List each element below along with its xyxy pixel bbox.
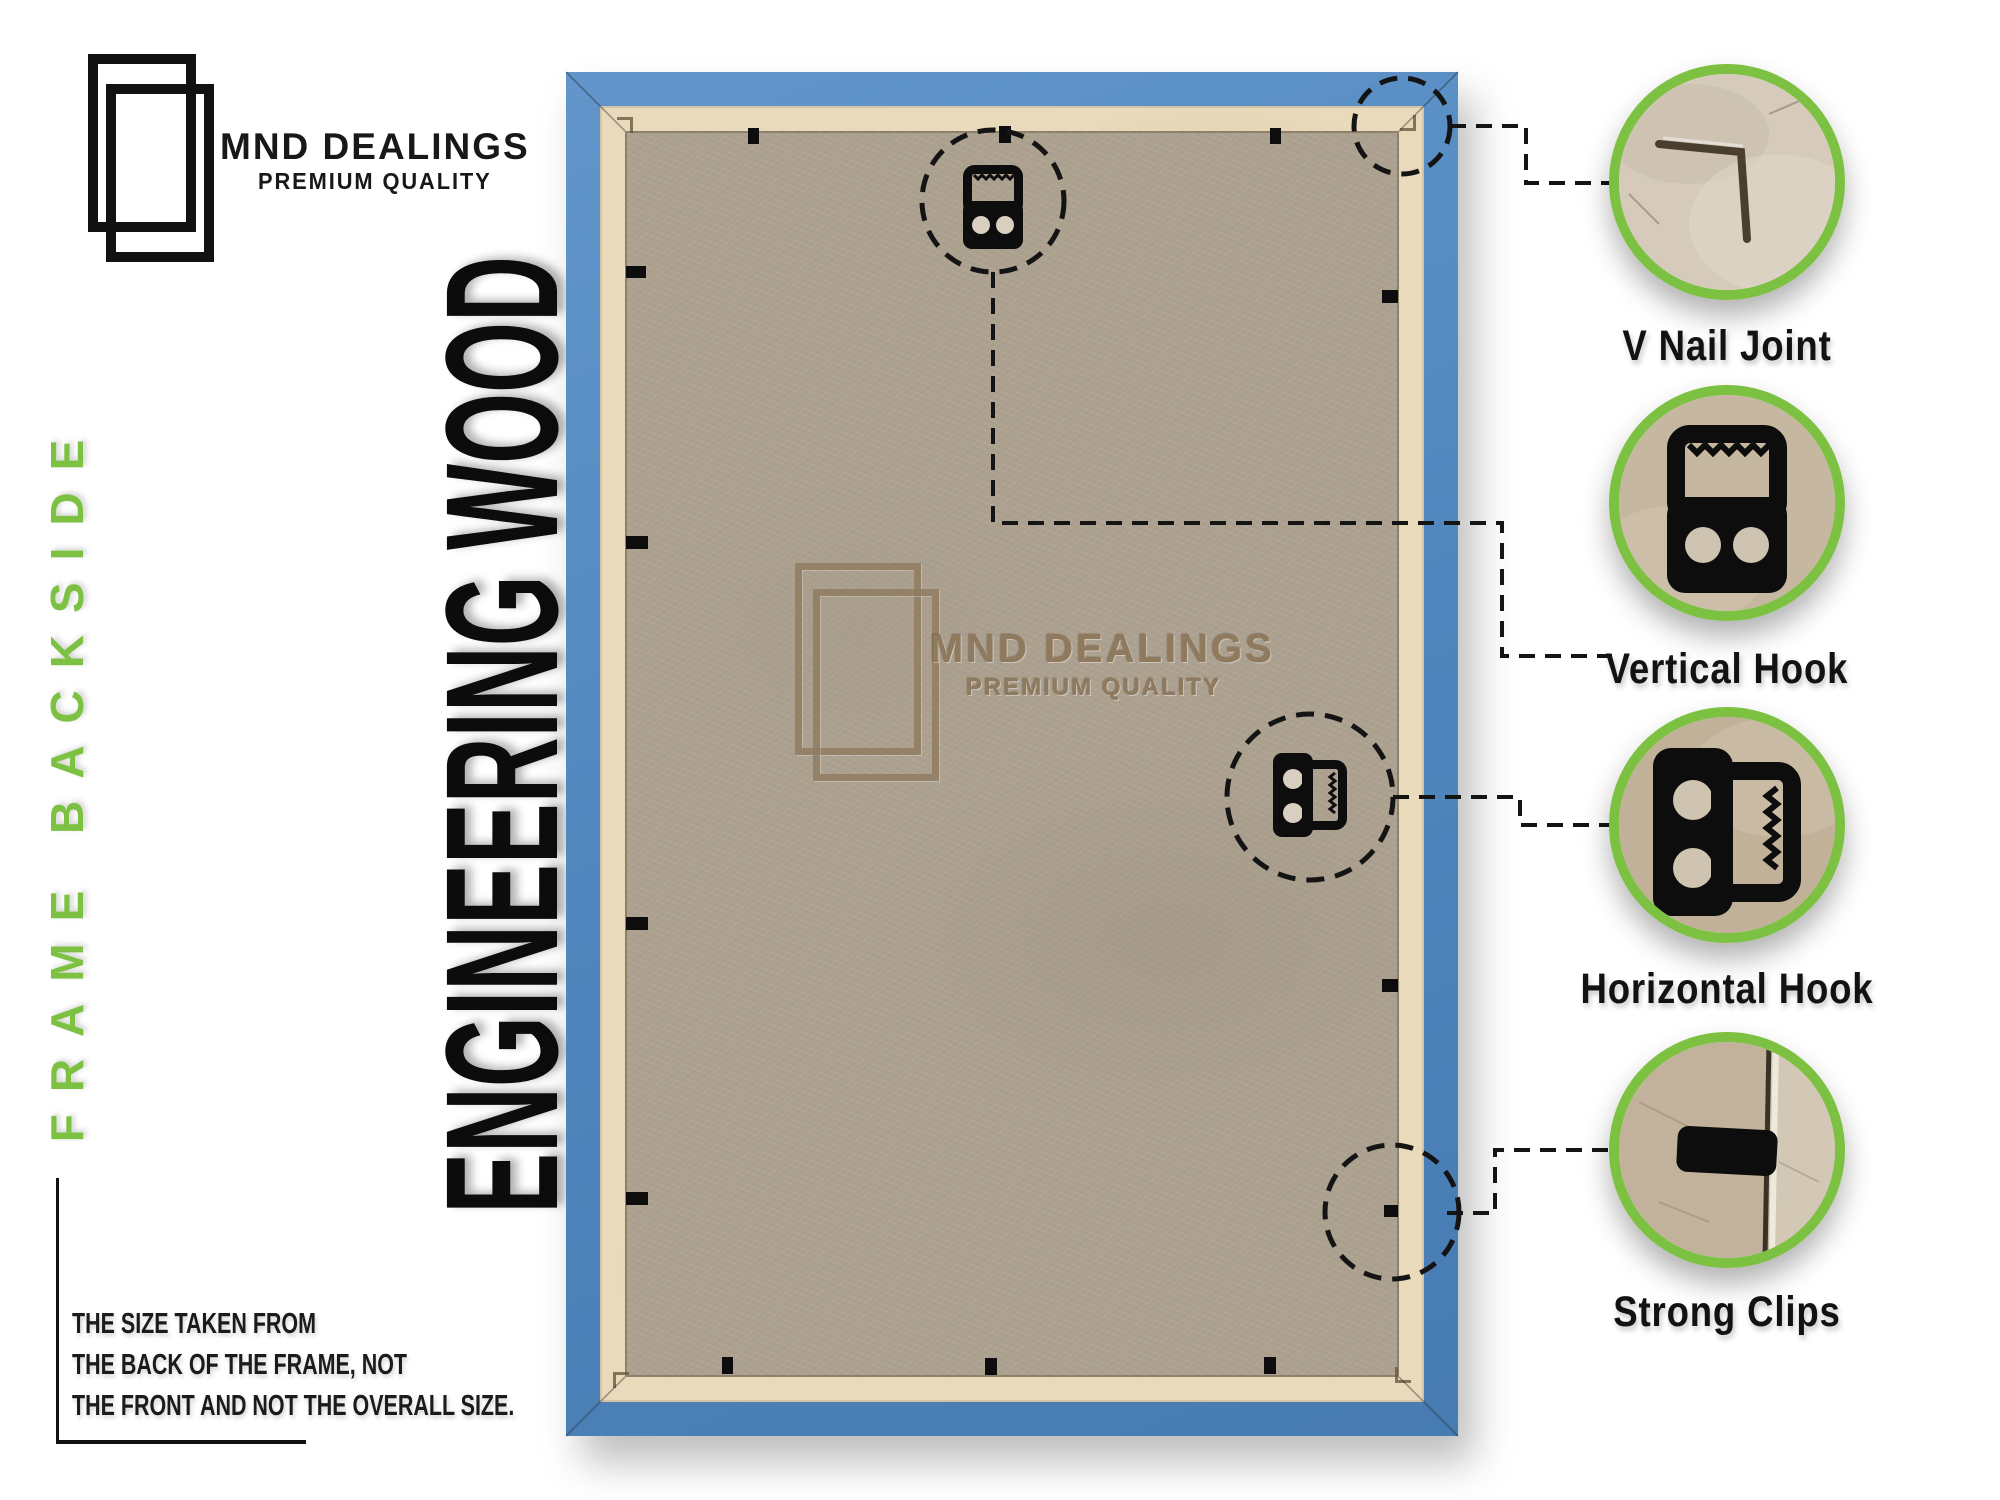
note-rule-vertical (56, 1178, 59, 1440)
watermark-tagline: PREMIUM QUALITY (966, 674, 1221, 702)
callout-label-vertical-hook: Vertical Hook (1559, 645, 1896, 694)
frame-clip (1384, 1205, 1398, 1217)
note-line-3: THE FRONT AND NOT THE OVERALL SIZE. (72, 1390, 514, 1423)
picture-frame-back: MND DEALINGS PREMIUM QUALITY (566, 72, 1458, 1436)
brand-logo-icon (106, 84, 214, 262)
frame-clip (999, 126, 1011, 143)
note-line-2: THE BACK OF THE FRAME, NOT (72, 1349, 407, 1382)
callout-horizontal-hook-photo (1609, 707, 1845, 943)
callout-label-horizontal-hook: Horizontal Hook (1559, 965, 1896, 1014)
connector-strong-clips (1447, 1150, 1612, 1213)
frame-clip (626, 1192, 648, 1205)
connector-v-nail (1450, 126, 1612, 183)
frame-clip (748, 128, 759, 144)
frame-clip (985, 1358, 997, 1375)
engineering-wood-label: ENGINEERING WOOD (437, 265, 567, 1205)
v-nail-mark-icon (1395, 1367, 1411, 1383)
callout-label-strong-clips: Strong Clips (1559, 1288, 1896, 1337)
frame-clip (626, 536, 648, 549)
frame-clip (1382, 979, 1398, 992)
frame-clip (626, 266, 646, 278)
frame-clip (1382, 290, 1398, 303)
callout-strong-clips-photo (1609, 1032, 1845, 1268)
frame-clip (1270, 128, 1281, 144)
callout-vertical-hook-photo (1609, 385, 1845, 621)
note-line-1: THE SIZE TAKEN FROM (72, 1308, 316, 1341)
watermark-logo-icon (813, 589, 939, 781)
horizontal-hook-icon (1273, 747, 1347, 843)
callout-v-nail-photo (1609, 64, 1845, 300)
brand-tagline: PREMIUM QUALITY (258, 168, 492, 195)
frame-clip (1264, 1357, 1276, 1374)
product-infographic: MND DEALINGS PREMIUM QUALITY FRAME BACKS… (0, 0, 2000, 1500)
brand-name: MND DEALINGS (220, 126, 530, 168)
frame-backside-label: FRAME BACKSIDE (37, 420, 97, 1140)
v-nail-mark-icon (617, 117, 633, 133)
vertical-hook-icon (963, 165, 1023, 249)
v-nail-mark-icon (1400, 115, 1416, 131)
watermark-name: MND DEALINGS (930, 627, 1275, 672)
callout-label-v-nail: V Nail Joint (1559, 322, 1896, 371)
v-nail-mark-icon (613, 1372, 629, 1388)
frame-clip (626, 917, 648, 930)
frame-clip (722, 1357, 733, 1374)
note-rule-horizontal (56, 1440, 306, 1444)
